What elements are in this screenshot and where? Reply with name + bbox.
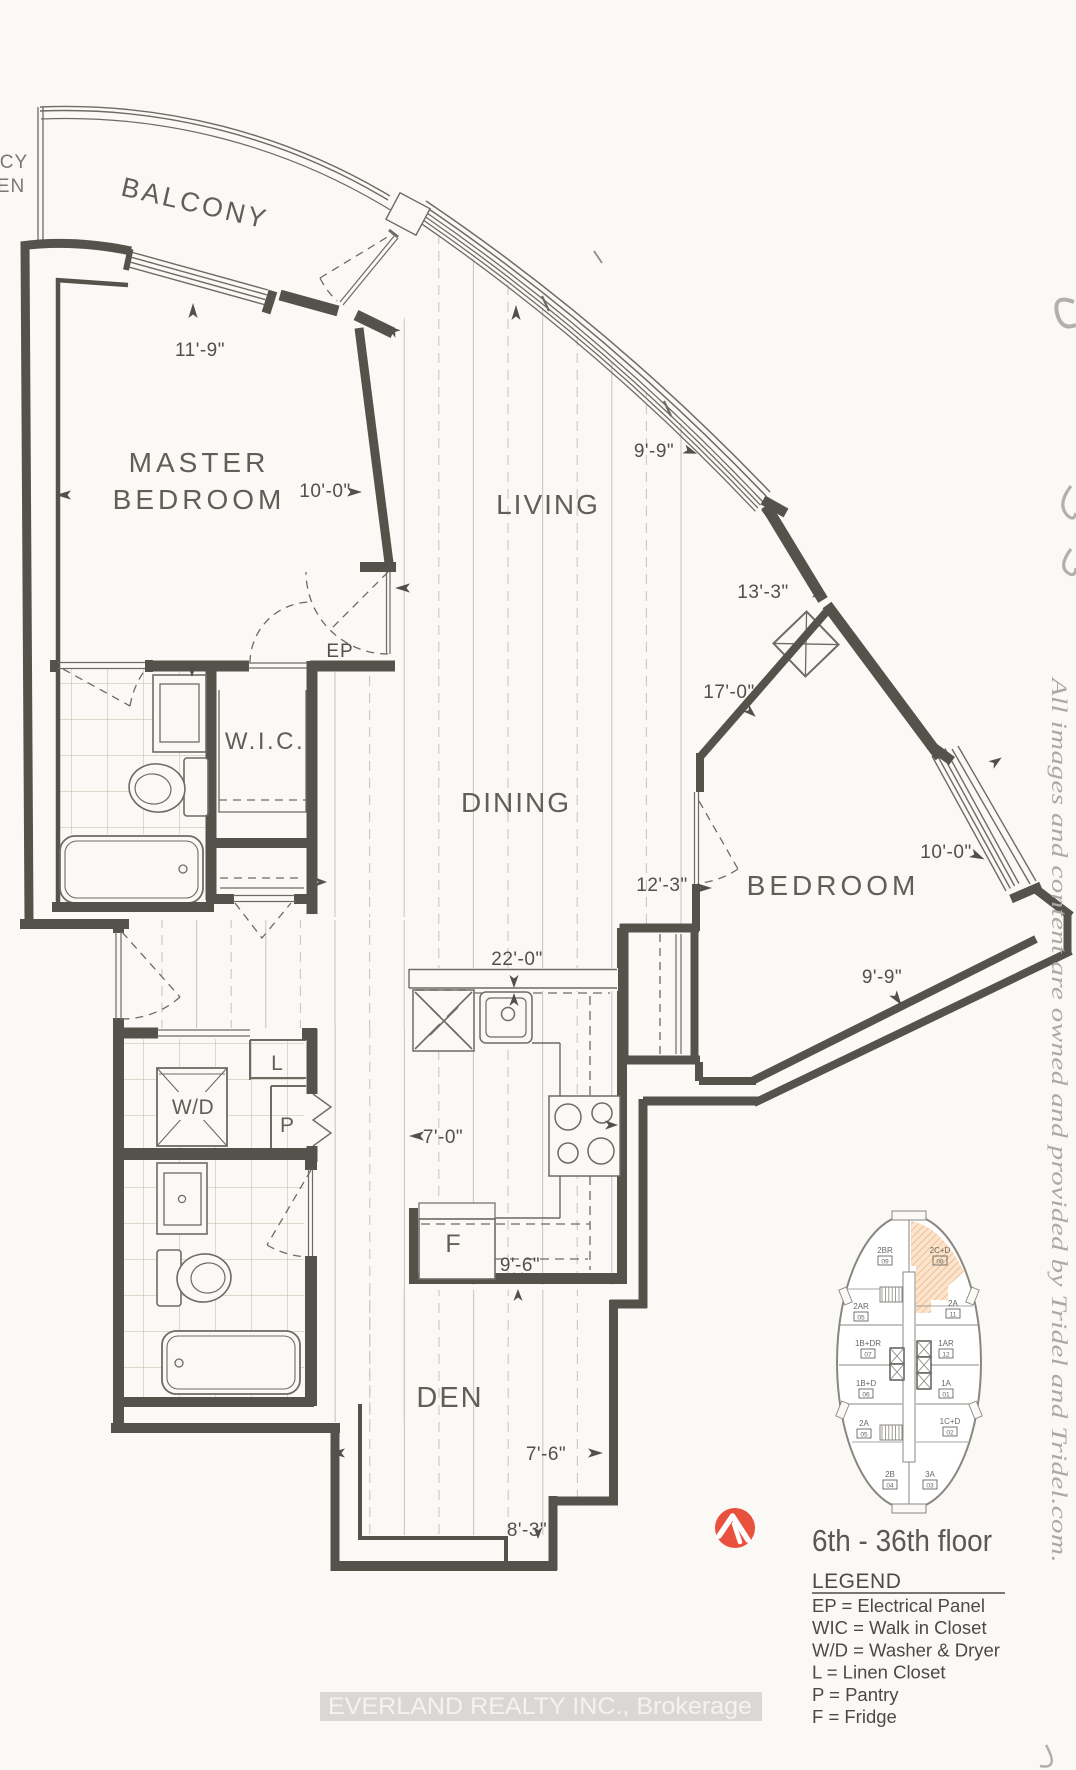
svg-text:01: 01 [942,1392,950,1399]
svg-text:03: 03 [926,1483,934,1490]
svg-text:2A: 2A [859,1419,869,1428]
svg-text:BEDROOM: BEDROOM [113,484,286,515]
svg-text:DEN: DEN [416,1382,483,1414]
svg-text:2B: 2B [885,1470,895,1479]
svg-text:L: L [271,1052,283,1075]
svg-text:2BR: 2BR [877,1246,893,1255]
svg-text:12'-3": 12'-3" [636,875,687,896]
svg-text:W/D: W/D [172,1096,214,1119]
svg-text:6th - 36th floor: 6th - 36th floor [812,1523,992,1558]
svg-text:EP = Electrical Panel: EP = Electrical Panel [812,1595,985,1616]
svg-text:BEDROOM: BEDROOM [747,870,920,901]
svg-text:06: 06 [862,1392,870,1399]
svg-text:9'-6": 9'-6" [500,1255,540,1276]
svg-text:LIVING: LIVING [496,489,600,520]
svg-text:1C+D: 1C+D [940,1417,961,1426]
svg-text:WIC = Walk in Closet: WIC = Walk in Closet [812,1617,987,1638]
svg-text:2C+D: 2C+D [930,1246,951,1255]
svg-text:02: 02 [946,1430,954,1437]
svg-text:EVERLAND REALTY INC., Brokerag: EVERLAND REALTY INC., Brokerage [328,1693,752,1720]
svg-text:9'-9": 9'-9" [862,967,902,988]
svg-text:9'-9": 9'-9" [634,441,674,462]
svg-text:09: 09 [881,1259,889,1266]
svg-text:08: 08 [936,1259,944,1266]
svg-text:EN: EN [0,176,25,197]
svg-text:DINING: DINING [461,787,571,818]
svg-text:1B+DR: 1B+DR [855,1339,881,1348]
svg-text:1B+D: 1B+D [856,1379,876,1388]
svg-text:P: P [280,1114,294,1137]
svg-text:10'-0": 10'-0" [920,842,971,863]
svg-text:W/D = Washer & Dryer: W/D = Washer & Dryer [812,1639,1000,1660]
svg-text:1A: 1A [941,1379,951,1388]
svg-text:12: 12 [942,1352,950,1359]
svg-text:3A: 3A [925,1470,935,1479]
svg-text:17'-0": 17'-0" [703,682,754,703]
svg-text:L = Linen Closet: L = Linen Closet [812,1662,946,1683]
svg-text:7'-0": 7'-0" [423,1127,463,1148]
svg-text:13'-3": 13'-3" [737,582,788,603]
svg-text:W.I.C.: W.I.C. [225,728,305,755]
svg-text:22'-0": 22'-0" [491,949,542,970]
svg-text:2A: 2A [948,1299,958,1308]
svg-text:P = Pantry: P = Pantry [812,1684,899,1705]
svg-text:EP: EP [326,641,353,662]
svg-text:05: 05 [860,1432,868,1439]
svg-text:2AR: 2AR [853,1302,869,1311]
svg-text:7'-6": 7'-6" [526,1444,566,1465]
svg-text:04: 04 [886,1483,894,1490]
svg-text:10'-0": 10'-0" [299,481,350,502]
svg-text:MASTER: MASTER [129,447,270,478]
svg-text:LEGEND: LEGEND [812,1570,901,1593]
svg-text:1AR: 1AR [938,1339,954,1348]
svg-text:All images and content are own: All images and content are owned and pro… [1047,675,1072,1563]
svg-text:F: F [445,1230,460,1258]
svg-text:CY: CY [0,152,28,173]
svg-text:F = Fridge: F = Fridge [812,1706,897,1727]
svg-text:11: 11 [950,1312,957,1319]
svg-text:05: 05 [857,1315,865,1322]
svg-text:11'-9": 11'-9" [175,340,225,361]
svg-text:07: 07 [864,1352,872,1359]
